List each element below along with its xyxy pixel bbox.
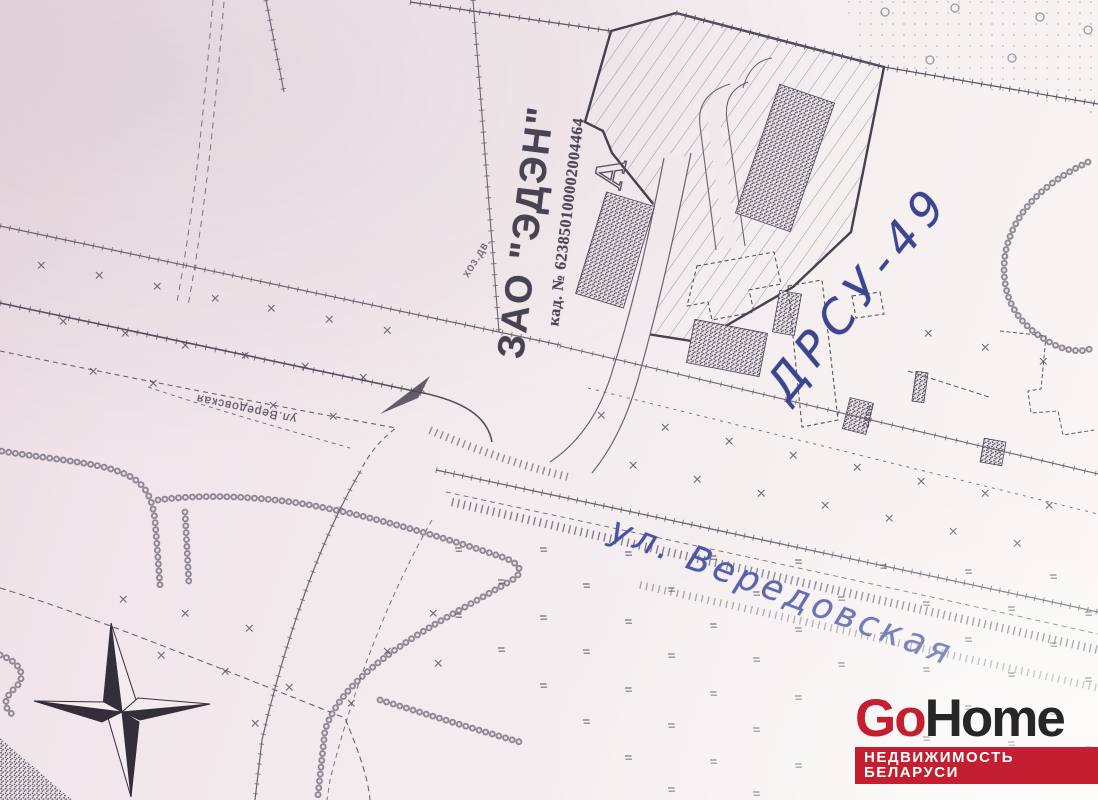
street-band <box>430 430 1098 688</box>
logo-go-text: Go <box>855 689 925 748</box>
scanned-site-plan: А ЗАО "ЭДЭН" кад. № 623850100002004464 х… <box>0 0 1098 800</box>
southwest-road <box>0 472 432 800</box>
logo-home-text: Home <box>925 689 1064 748</box>
north-paths <box>177 0 499 332</box>
gohome-logo: GoHome НЕДВИЖИМОСТЬ БЕЛАРУСИ <box>855 692 1098 784</box>
east-fences <box>908 331 1094 435</box>
logo-tagline: НЕДВИЖИМОСТЬ БЕЛАРУСИ <box>855 747 1098 784</box>
road-bundle <box>0 226 1098 514</box>
compass-icon <box>34 623 210 797</box>
gohome-logo-wordmark: GoHome <box>855 692 1098 745</box>
